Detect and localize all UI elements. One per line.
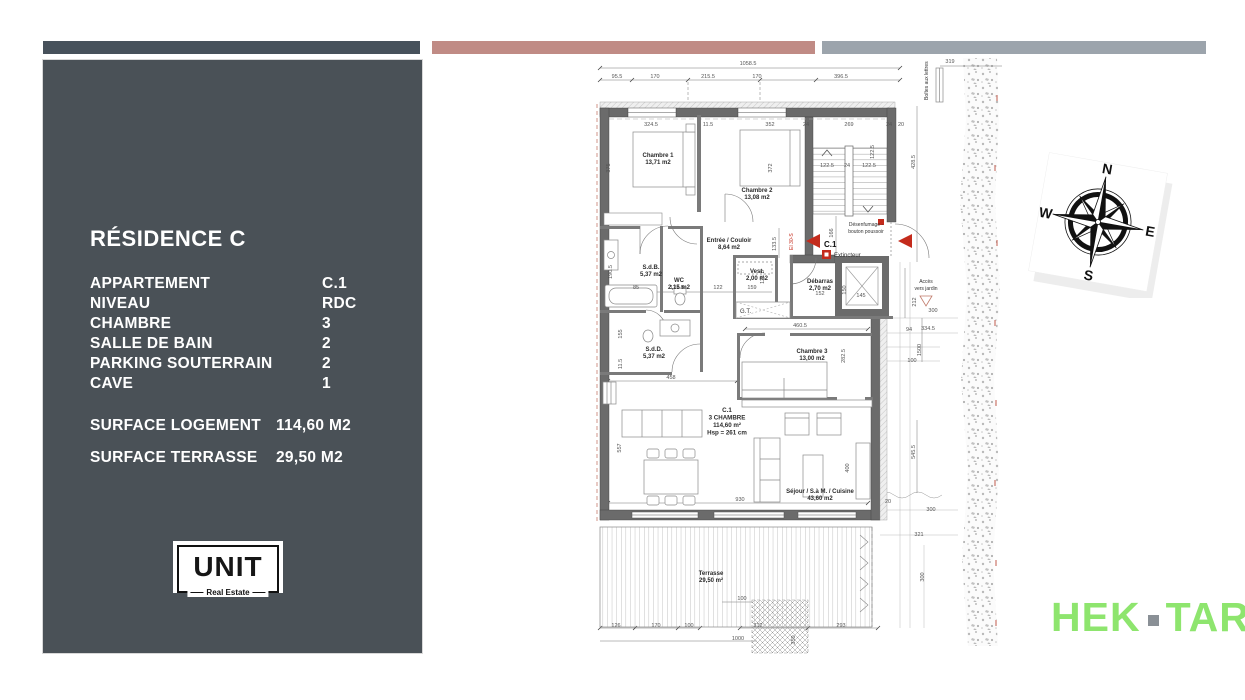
compass-card: N E S W [1028,151,1168,294]
bed-3 [742,362,827,398]
dimension-label: 372 [768,163,774,172]
hektar-logo-left: HEK [1051,594,1141,641]
dimension-label: 159 [747,285,756,291]
dimension-label: 190.5 [608,265,614,279]
dimension-label: 930 [735,497,744,503]
spec-row-value: C.1 [322,274,396,294]
spec-row-label: SALLE DE BAIN [90,334,322,354]
dimension-label: 334.5 [921,326,935,332]
dimension-label: 557 [617,443,623,452]
annotation-label: Extincteur [834,253,861,259]
building-entry-arrow [898,234,912,248]
room-label: Entrée / Couloir8,64 m2 [707,238,752,251]
dimension-label: 396.5 [834,74,848,80]
spec-row-value: 3 [322,314,396,334]
spec-row: CHAMBRE3 [90,314,396,334]
dining-table [644,460,698,494]
spec-row: PARKING SOUTERRAIN2 [90,354,396,374]
dimension-label: 94 [906,327,912,333]
dimension-label: 350 [791,635,797,644]
spec-row-value: 1 [322,374,396,394]
spec-row-value: 2 [322,334,396,354]
info-panel: RÉSIDENCE C APPARTEMENTC.1NIVEAURDCCHAMB… [43,60,422,653]
annotation-label: G.T. [740,309,751,315]
dimension-label: 20 [885,499,891,505]
dimension-label: 293 [836,623,845,629]
bed-2 [740,130,800,186]
room-label: Chambre 113,71 m2 [642,153,674,166]
annotation-label: Désenfumage -bouton poussoir [848,222,884,235]
dimension-label: 122.5 [870,145,876,159]
sofa [754,438,780,502]
dimension-label: 24 [803,122,809,128]
room-label: Chambre 213,08 m2 [741,188,773,201]
dimension-label: 24 [844,163,850,169]
residence-title: RÉSIDENCE C [90,226,396,252]
spec-row-label: PARKING SOUTERRAIN [90,354,322,374]
kitchen-counter [742,400,872,407]
dimension-label: 215.5 [701,74,715,80]
dimension-label: 11.5 [618,359,624,369]
surface-row: SURFACE TERRASSE29,50 M2 [90,449,396,467]
dimension-label: 170 [651,623,660,629]
dimension-label: 269 [844,122,853,128]
dimension-label: 166 [829,228,835,237]
floor-plan: 1058.595.5170215.5170396.5319324.511.535… [585,55,1005,667]
dimension-label: 150 [842,285,848,294]
dimension-label: 312 [753,623,762,629]
spec-row-label: APPARTEMENT [90,274,322,294]
toilet-2 [643,330,653,342]
dimension-label: 428.5 [911,155,917,169]
compass: N E S W [1022,142,1174,298]
terrace [600,527,872,653]
surface-table: SURFACE LOGEMENT114,60 M2SURFACE TERRASS… [90,417,396,467]
room-label: Séjour / S.à M. / Cuisine43,60 m2 [786,489,854,502]
dimension-label: 400 [845,463,851,472]
unit-logo-tagline: Real Estate [187,588,268,597]
dimension-label: 85 [633,285,639,291]
accent-bar-left [43,41,420,54]
wardrobe [604,213,662,225]
dimension-label: 282.5 [841,349,847,363]
stone-wall-strip [960,58,1000,646]
dimension-label: 126 [611,623,620,629]
dimension-label: 95.5 [612,74,623,80]
dimension-label: 122.5 [820,163,834,169]
dimension-label: 122.5 [862,163,876,169]
spec-row: SALLE DE BAIN2 [90,334,396,354]
room-label: S.d.D.5,37 m2 [643,347,666,360]
toilet [675,293,685,305]
dimension-label: 324.5 [644,122,658,128]
garden-access-arrow [920,296,932,306]
spec-row-label: CAVE [90,374,322,394]
annotation-label: C.1 [824,240,837,249]
armchair-2 [817,413,841,435]
hektar-logo-dot [1148,615,1159,626]
accent-bar-right [822,41,1206,54]
annotation-label: EI 30-S [789,233,795,250]
armchair-1 [785,413,809,435]
surface-row-label: SURFACE TERRASSE [90,449,276,467]
dimension-label: 545.5 [911,445,917,459]
surface-row: SURFACE LOGEMENT114,60 M2 [90,417,396,435]
spec-row: NIVEAURDC [90,294,396,314]
sideboard [856,443,870,499]
spec-row-label: NIVEAU [90,294,322,314]
dimension-label: 170 [752,74,761,80]
surface-row-value: 114,60 M2 [276,417,351,435]
unit-logo: UNIT Real Estate [173,541,283,593]
dimension-label: 100 [737,596,746,602]
dimension-label: 212 [912,297,918,306]
dimension-label: 300 [926,507,935,513]
room-label: WC2,15 m2 [668,278,691,291]
dimension-label: 319 [945,59,954,65]
dimension-label: 100 [907,358,916,364]
spec-row: APPARTEMENTC.1 [90,274,396,294]
dimension-label: 145 [856,293,865,299]
room-label: Chambre 313,00 m2 [796,349,828,362]
dimension-label: 458 [666,375,675,381]
dimension-label: 20 [898,122,904,128]
dimension-label: 133.5 [772,237,778,251]
dimension-label: 1058.5 [740,61,757,67]
spec-row-label: CHAMBRE [90,314,322,334]
unit-logo-name: UNIT [193,553,262,581]
annotation-label: Boîtes aux lettres [924,61,930,100]
spec-row-value: 2 [322,354,396,374]
annotation-label: Accèsvers jardin [914,279,937,292]
hektar-logo-right: TAR [1166,594,1245,641]
dimension-label: 352 [765,122,774,128]
slide: RÉSIDENCE C APPARTEMENTC.1NIVEAURDCCHAMB… [0,0,1245,700]
radiator [603,382,616,404]
dimension-label: 100 [684,623,693,629]
dimension-label: 170 [650,74,659,80]
dimension-label: 375 [606,163,612,172]
dimension-label: 300 [920,572,926,581]
accent-bar-middle [432,41,815,54]
dimension-label: 1500 [917,344,923,356]
dimension-label: 24 [886,122,892,128]
room-label: Terrasse29,50 m² [699,571,724,584]
spec-row-value: RDC [322,294,396,314]
room-label: Débarras2,70 m2 [807,279,834,292]
unit-info-label: C.13 CHAMBRE114,60 m²Hsp = 261 cm [707,407,747,437]
hektar-logo: HEK TAR [1051,594,1245,641]
spec-table: APPARTEMENTC.1NIVEAURDCCHAMBRE3SALLE DE … [90,274,396,394]
surface-row-value: 29,50 M2 [276,449,343,467]
spec-row: CAVE1 [90,374,396,394]
room-label: S.d.B.5,37 m2 [640,265,663,278]
surface-row-label: SURFACE LOGEMENT [90,417,276,435]
dimension-label: 11.5 [703,122,713,128]
dimension-label: 321 [914,532,923,538]
dimension-label: 122 [713,285,722,291]
dimension-label: 1000 [732,636,744,642]
dimension-label: 460.5 [793,323,807,329]
dimension-label: 155 [618,329,624,338]
dimension-label: 300 [928,308,937,314]
